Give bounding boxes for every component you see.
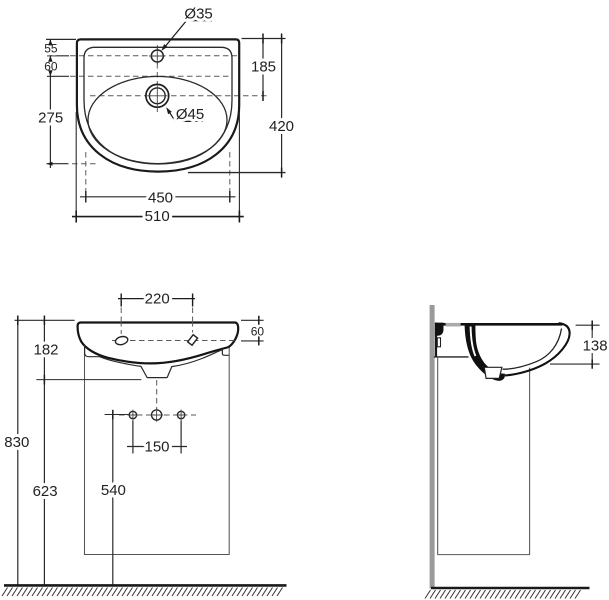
svg-text:623: 623 <box>33 483 58 500</box>
svg-text:Ø35: Ø35 <box>184 5 212 22</box>
svg-text:220: 220 <box>145 291 170 308</box>
svg-text:450: 450 <box>148 189 173 206</box>
svg-text:830: 830 <box>4 434 29 451</box>
svg-text:540: 540 <box>101 482 126 499</box>
svg-text:420: 420 <box>269 118 294 135</box>
svg-text:182: 182 <box>33 341 58 358</box>
svg-text:275: 275 <box>38 110 63 127</box>
svg-text:138: 138 <box>583 338 608 355</box>
svg-text:60: 60 <box>251 324 265 338</box>
svg-text:Ø45: Ø45 <box>176 106 204 123</box>
svg-text:510: 510 <box>145 208 170 225</box>
svg-text:185: 185 <box>251 59 276 76</box>
svg-text:150: 150 <box>144 439 169 456</box>
